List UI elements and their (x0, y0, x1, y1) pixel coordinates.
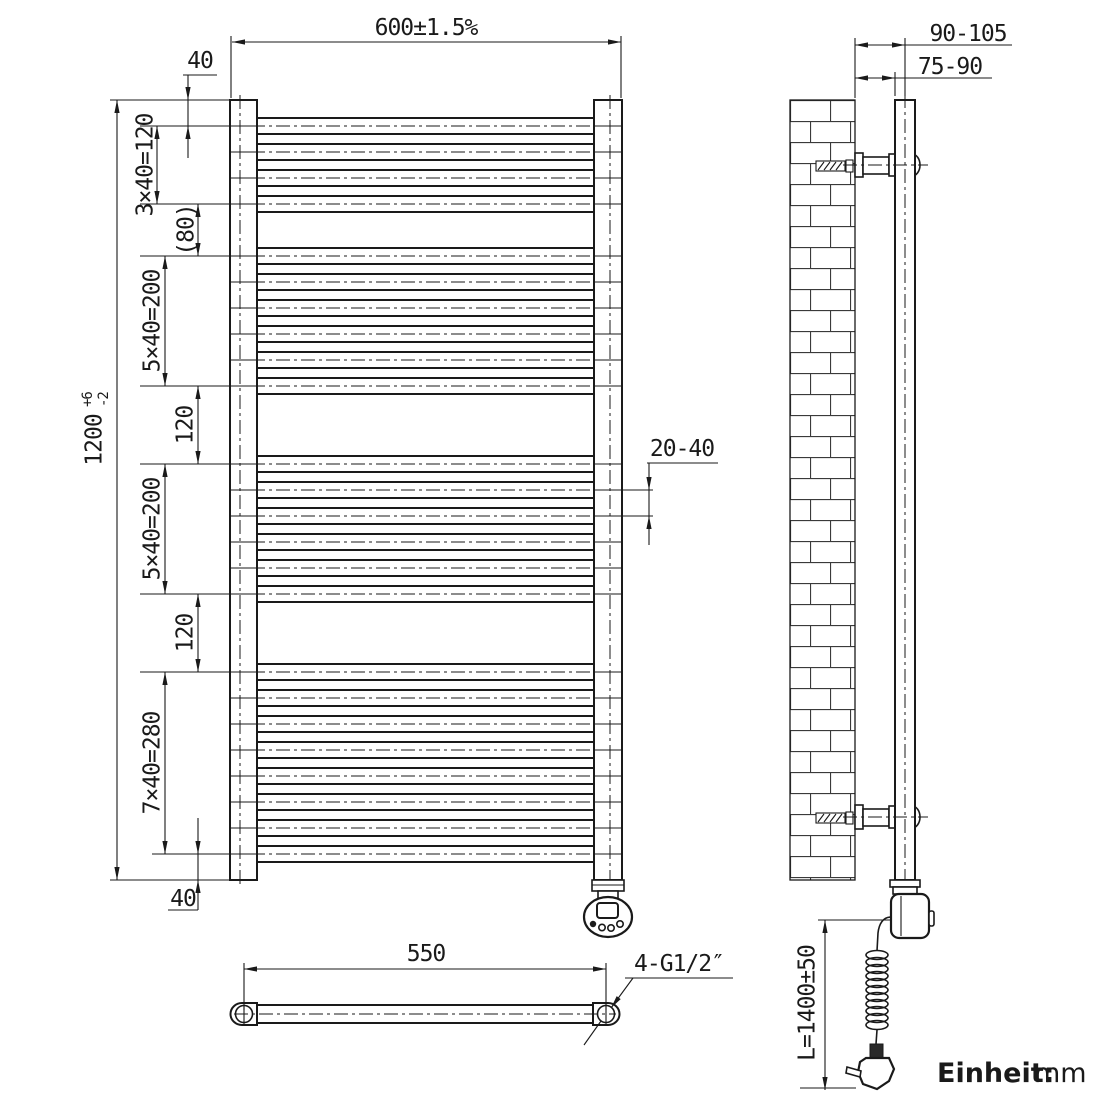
dim-wall-to-center-label: 90-105 (929, 21, 1006, 47)
coiled-cable (866, 951, 888, 1030)
unit-note-value: mm (1034, 1058, 1087, 1089)
element-nut (890, 880, 920, 887)
control-button-3 (608, 925, 614, 931)
dim-gap3-label: 120 (173, 614, 199, 653)
anchor-screw-head (846, 160, 853, 172)
dim-wall-to-face-label: 75-90 (918, 54, 982, 80)
power-cable-lower (876, 1030, 877, 1044)
control-button-2 (599, 924, 605, 930)
dim-group4-label: 7×40=280 (140, 711, 166, 814)
front-view: 600±1.5% 1200 +6 -2 4 (80, 15, 718, 937)
element-side-nub (929, 911, 934, 926)
anchor-screw-head (846, 812, 853, 824)
bottom-view: 550 4-G1/2″ (231, 941, 734, 1045)
dim-height-tol-minus: -2 (96, 392, 112, 407)
rung-bars (231, 118, 621, 862)
dim-overall-height-label: 1200 (82, 414, 108, 466)
dim-top-offset-label: 40 (187, 48, 213, 74)
dim-group2-label: 5×40=200 (140, 269, 166, 372)
brick-wall (790, 100, 855, 880)
dim-gap1-label: (80) (174, 204, 200, 255)
thread-callout-label: 4-G1/2″ (634, 951, 724, 977)
dim-overall-width-label: 600±1.5% (375, 15, 479, 41)
dim-cable-length-label: L=1400±50 (795, 945, 821, 1061)
power-cable-upper (877, 917, 891, 951)
unit-note: Einheit: mm (937, 1058, 1087, 1089)
control-button-1 (590, 921, 596, 927)
power-plug-body (858, 1058, 894, 1089)
technical-drawing-page: 600±1.5% 1200 +6 -2 4 (0, 0, 1100, 1100)
dim-group3-label: 5×40=200 (140, 477, 166, 580)
dim-top-offset: 40 (183, 48, 217, 158)
dim-height-tol-plus: +6 (80, 392, 96, 407)
towel-radiator-drawing: 600±1.5% 1200 +6 -2 4 (0, 0, 1100, 1100)
control-button-4 (617, 921, 623, 927)
dim-gap2-label: 120 (173, 406, 199, 445)
side-view: 90-105 75-90 L=1400±50 (790, 21, 1012, 1090)
dim-bottom-offset: 40 (168, 818, 201, 912)
dim-bottom-offset-label: 40 (170, 886, 196, 912)
heater-control-unit-front (584, 880, 632, 937)
dim-connection-spacing: 550 (244, 941, 606, 1010)
dim-hanging-gap-label: 20-40 (650, 436, 714, 462)
dim-wall-to-face: 75-90 (855, 54, 992, 96)
plug-strain-relief (870, 1044, 883, 1058)
dim-overall-width: 600±1.5% (231, 15, 621, 98)
dim-group1-label: 3×40=120 (133, 113, 159, 216)
dim-connection-spacing-label: 550 (407, 941, 446, 967)
element-body (891, 894, 929, 938)
heating-element-side (846, 880, 934, 1089)
